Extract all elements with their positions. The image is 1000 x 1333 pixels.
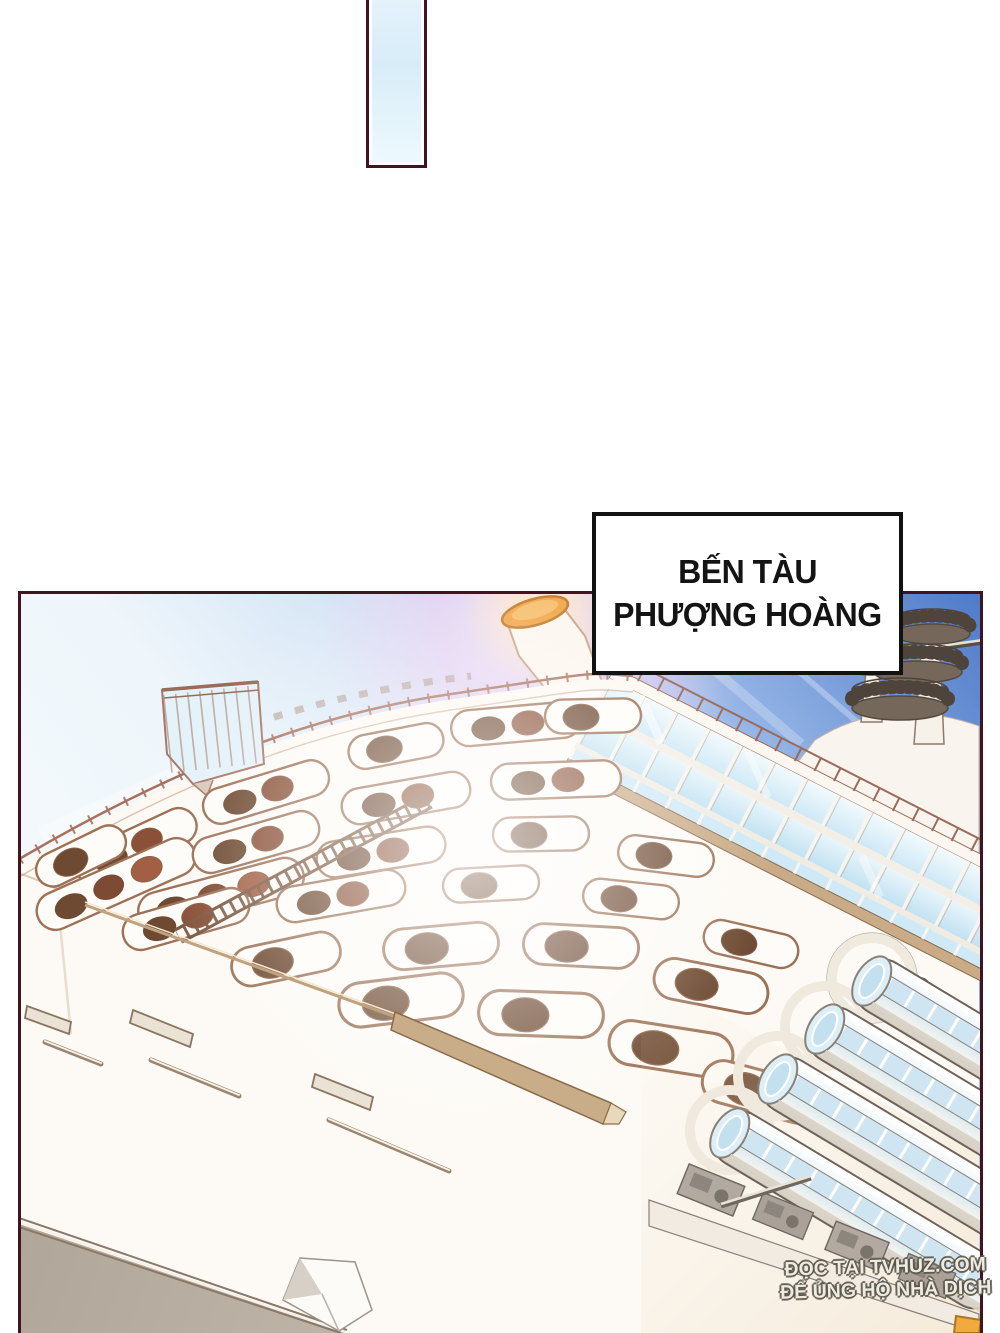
caption-line-1: BẾN TÀU xyxy=(678,551,817,594)
panel-top-sliver-sky xyxy=(372,0,421,162)
panel-top-sliver xyxy=(366,0,427,168)
cruise-ship-illustration xyxy=(21,594,980,1333)
corner-crate xyxy=(954,1316,980,1333)
caption-box: BẾN TÀU PHƯỢNG HOÀNG xyxy=(592,512,903,675)
caption-line-2: PHƯỢNG HOÀNG xyxy=(613,594,882,637)
comic-page: BẾN TÀU PHƯỢNG HOÀNG ĐỌC TẠI TVHUZ.COM Đ… xyxy=(0,0,1000,1333)
mast-platform xyxy=(852,678,948,720)
panel-main xyxy=(18,591,983,1333)
mast-platform xyxy=(894,609,970,644)
